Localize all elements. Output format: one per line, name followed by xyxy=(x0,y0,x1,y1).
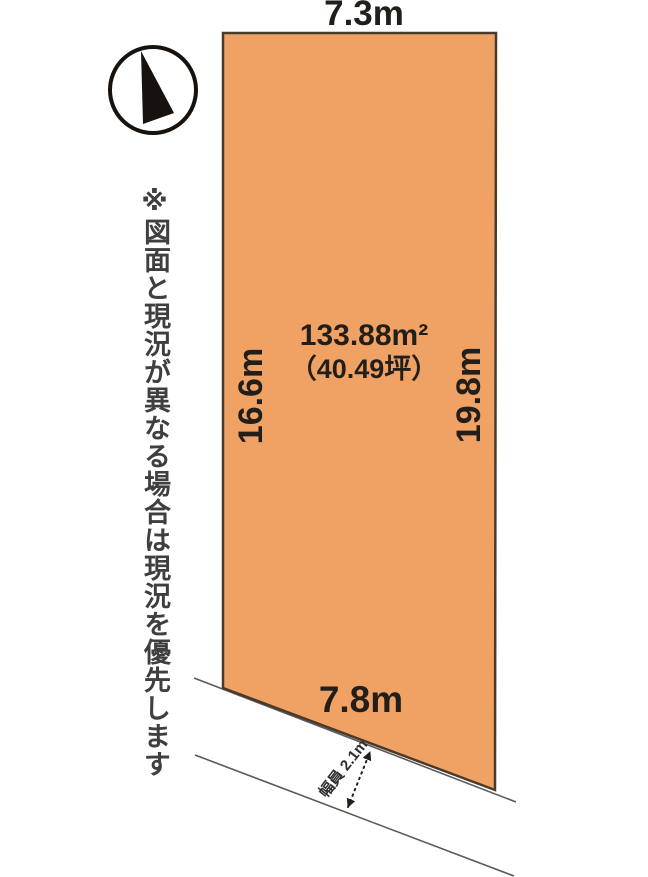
north-arrow-icon xyxy=(110,47,196,133)
plot-area-m2: 133.88m² xyxy=(254,319,474,353)
plot-area-tsubo: （40.49坪） xyxy=(254,353,474,386)
dimension-left-label: 16.6m xyxy=(231,336,271,456)
land-plot-diagram: 7.3m ※図面と現況が異なる場合は現況を優先します 133.88m² （40.… xyxy=(0,0,648,877)
dimension-right-label: 19.8m xyxy=(449,335,489,455)
dimension-top-label: 7.3m xyxy=(264,0,464,34)
dimension-bottom-label: 7.8m xyxy=(261,679,461,721)
plot-area-label: 133.88m² （40.49坪） xyxy=(254,319,474,386)
diagram-shapes xyxy=(0,0,648,877)
disclaimer-text: ※図面と現況が異なる場合は現況を優先します xyxy=(138,186,172,778)
